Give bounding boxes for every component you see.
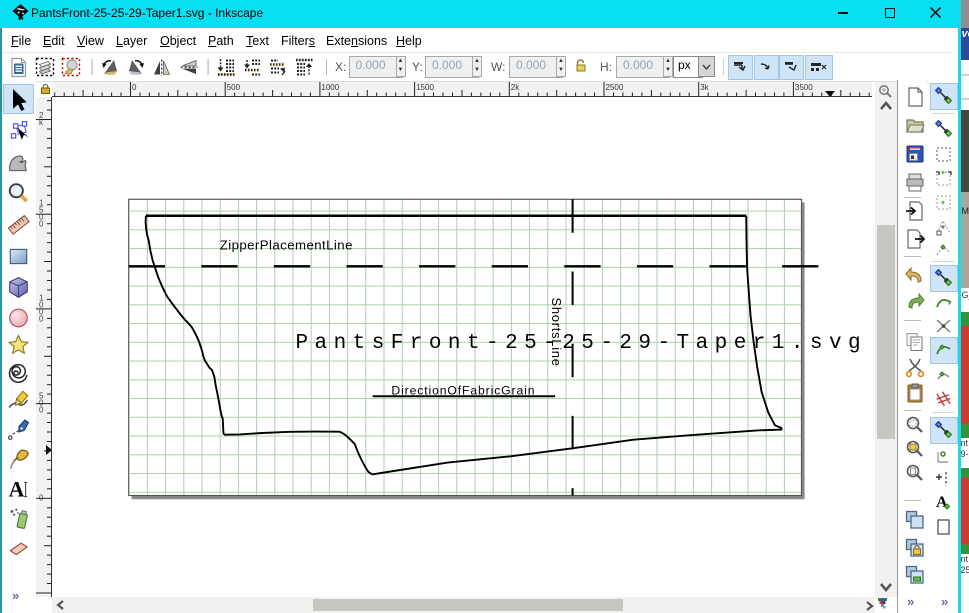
svg-text:0: 0 <box>39 406 44 415</box>
svg-text:0: 0 <box>39 314 44 323</box>
svg-text:PantsFront-25-25-29-Taper1.svg: PantsFront-25-25-29-Taper1.svg <box>296 332 868 355</box>
svg-text:ShortsLine: ShortsLine <box>549 298 564 367</box>
svg-text:3k: 3k <box>700 83 709 92</box>
svg-text:0: 0 <box>39 220 44 229</box>
svg-text:500: 500 <box>227 83 241 92</box>
svg-text:A: A <box>9 478 25 501</box>
svg-text:0: 0 <box>39 493 44 502</box>
svg-text:1000: 1000 <box>321 83 339 92</box>
svg-text:3500: 3500 <box>795 83 813 92</box>
svg-text:0: 0 <box>132 83 137 92</box>
svg-text:ZipperPlacementLine: ZipperPlacementLine <box>220 237 353 252</box>
svg-text:DirectionOfFabricGrain: DirectionOfFabricGrain <box>391 383 535 397</box>
svg-text:2k: 2k <box>511 83 520 92</box>
svg-text:1500: 1500 <box>416 83 434 92</box>
svg-text:2500: 2500 <box>606 83 624 92</box>
